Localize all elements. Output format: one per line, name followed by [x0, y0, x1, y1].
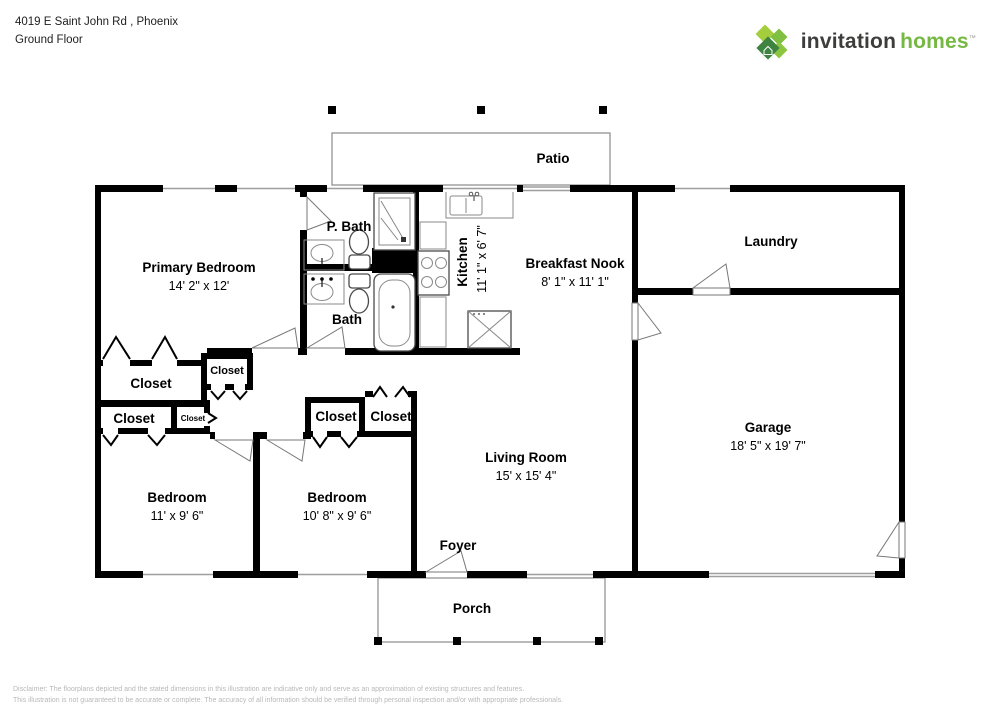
room-label-foyer: Foyer	[440, 538, 478, 553]
door-swing-bedroom-3	[267, 440, 305, 461]
room-labels: Patio Primary Bedroom 14' 2" x 12' P. Ba…	[113, 151, 805, 616]
patio-outline	[328, 106, 610, 185]
room-label-patio: Patio	[536, 151, 569, 166]
patio-post	[599, 106, 607, 114]
room-label-garage: Garage	[745, 420, 792, 435]
sink-icon	[304, 274, 344, 304]
closet-label: Closet	[181, 414, 206, 423]
closet-label: Closet	[130, 376, 172, 391]
room-label-bedroom-3: Bedroom	[307, 490, 366, 505]
room-dims-bedroom-2: 11' x 9' 6"	[151, 509, 204, 523]
shower-icon	[374, 193, 415, 250]
bathtub-icon	[374, 274, 415, 351]
porch-post	[595, 637, 603, 645]
disclaimer-line-2: This illustration is not guaranteed to b…	[13, 695, 563, 706]
sliding-door	[523, 187, 570, 191]
cabinet-icon	[420, 297, 446, 347]
floorplan-drawing: Patio Primary Bedroom 14' 2" x 12' P. Ba…	[0, 0, 1000, 707]
room-label-porch: Porch	[453, 601, 491, 616]
door-swing-bath	[307, 327, 345, 348]
door-swing-garage-exterior	[877, 522, 899, 558]
door-leaf-laundry	[693, 288, 730, 295]
room-dims-breakfast-nook: 8' 1" x 11' 1"	[541, 275, 609, 289]
pantry-icon	[468, 311, 511, 348]
room-label-kitchen: Kitchen	[455, 237, 470, 287]
room-dims-primary-bedroom: 14' 2" x 12'	[169, 279, 230, 293]
room-label-laundry: Laundry	[744, 234, 798, 249]
room-label-bedroom-2: Bedroom	[147, 490, 206, 505]
disclaimer-text: Disclaimer: The floorplans depicted and …	[13, 684, 563, 706]
door-leaf-garage	[632, 303, 638, 340]
toilet-icon	[349, 274, 370, 313]
door-swing-entry	[426, 551, 467, 572]
floorplan-page: 4019 E Saint John Rd , Phoenix Ground Fl…	[0, 0, 1000, 707]
closet-label: Closet	[315, 409, 357, 424]
closet-label: Closet	[370, 409, 412, 424]
room-label-breakfast-nook: Breakfast Nook	[525, 256, 625, 271]
door-leaf-garage-exterior	[899, 522, 905, 558]
closet-label: Closet	[113, 411, 155, 426]
room-dims-kitchen: 11' 1" x 6' 7"	[475, 225, 489, 293]
porch-post	[374, 637, 382, 645]
room-dims-garage: 18' 5" x 19' 7"	[730, 439, 806, 453]
closet-label: Closet	[210, 365, 244, 377]
cabinet-icon	[420, 222, 446, 249]
room-label-p-bath: P. Bath	[327, 219, 372, 234]
porch-post	[453, 637, 461, 645]
toilet-icon	[349, 230, 370, 269]
door-swing-garage	[638, 303, 661, 340]
patio-post	[477, 106, 485, 114]
room-label-primary-bedroom: Primary Bedroom	[142, 260, 255, 275]
kitchen-sink-icon	[446, 192, 513, 218]
disclaimer-line-1: Disclaimer: The floorplans depicted and …	[13, 684, 563, 695]
porch-post	[533, 637, 541, 645]
room-label-living-room: Living Room	[485, 450, 567, 465]
door-swing-laundry	[693, 264, 730, 288]
stove-icon	[418, 251, 449, 295]
room-dims-living-room: 15' x 15' 4"	[496, 469, 557, 483]
room-dims-bedroom-3: 10' 8" x 9' 6"	[303, 509, 372, 523]
door-swing-bedroom-2	[215, 440, 253, 461]
patio-post	[328, 106, 336, 114]
garage-door	[705, 571, 879, 578]
room-label-bath: Bath	[332, 312, 362, 327]
door-swing-primary-bedroom	[252, 328, 298, 348]
